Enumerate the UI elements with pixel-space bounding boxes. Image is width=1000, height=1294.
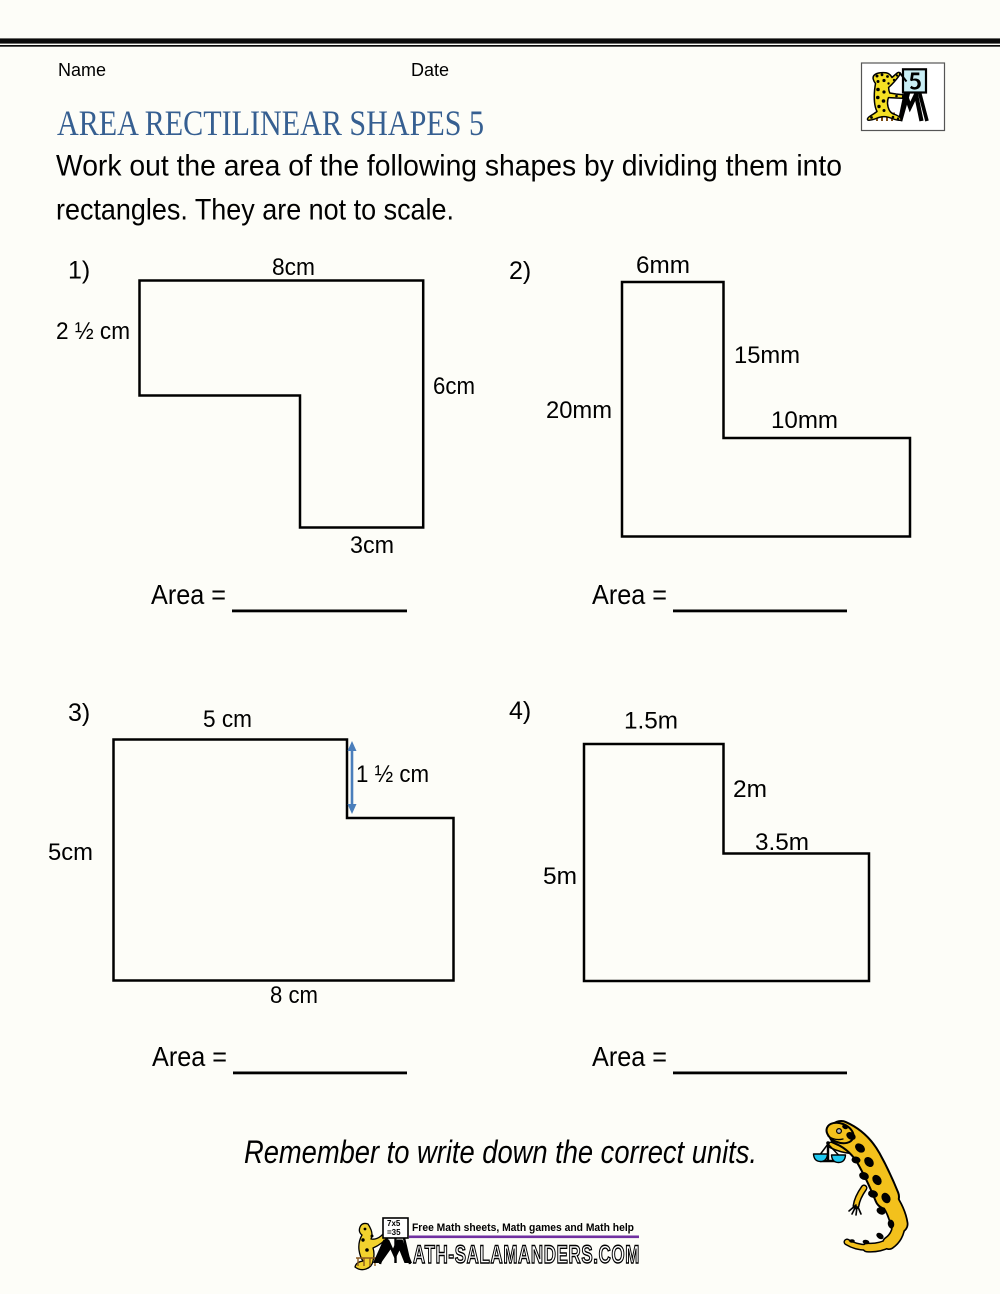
svg-text:3cm: 3cm	[350, 532, 394, 559]
svg-text:2m: 2m	[733, 776, 767, 803]
svg-text:ATH-SALAMANDERS.COM: ATH-SALAMANDERS.COM	[413, 1241, 640, 1269]
svg-text:4): 4)	[509, 697, 531, 725]
svg-text:Name: Name	[58, 60, 106, 80]
svg-text:Area =: Area =	[152, 1041, 227, 1072]
svg-text:rectangles. They are not to sc: rectangles. They are not to scale.	[56, 194, 454, 227]
svg-text:Date: Date	[411, 60, 449, 80]
svg-text:7x5: 7x5	[387, 1219, 401, 1228]
svg-text:Area =: Area =	[592, 1041, 667, 1072]
svg-text:10mm: 10mm	[771, 407, 838, 434]
svg-text:2 ½ cm: 2 ½ cm	[56, 318, 130, 345]
svg-text:Free Math sheets, Math games a: Free Math sheets, Math games and Math he…	[412, 1222, 634, 1234]
svg-text:2): 2)	[509, 257, 531, 285]
svg-text:1.5m: 1.5m	[624, 708, 678, 735]
svg-text:AREA RECTILINEAR SHAPES 5: AREA RECTILINEAR SHAPES 5	[57, 103, 484, 143]
svg-text:20mm: 20mm	[546, 397, 612, 424]
svg-text:8cm: 8cm	[272, 254, 315, 281]
svg-text:8 cm: 8 cm	[270, 982, 318, 1009]
svg-text:=35: =35	[387, 1228, 401, 1237]
svg-text:3.5m: 3.5m	[755, 829, 809, 856]
svg-text:5m: 5m	[543, 863, 577, 890]
svg-text:5cm: 5cm	[48, 839, 93, 866]
svg-text:Work out the area of the follo: Work out the area of the following shape…	[56, 150, 842, 183]
svg-text:1 ½ cm: 1 ½ cm	[356, 761, 429, 788]
svg-text:1): 1)	[68, 257, 90, 285]
svg-text:5 cm: 5 cm	[203, 706, 252, 733]
svg-text:Area =: Area =	[151, 579, 226, 610]
svg-text:6mm: 6mm	[636, 252, 690, 279]
svg-text:3): 3)	[68, 699, 90, 727]
svg-text:15mm: 15mm	[734, 342, 800, 369]
svg-text:Remember to write down the cor: Remember to write down the correct units…	[244, 1134, 757, 1170]
svg-text:Area =: Area =	[592, 579, 667, 610]
svg-text:6cm: 6cm	[433, 373, 475, 400]
